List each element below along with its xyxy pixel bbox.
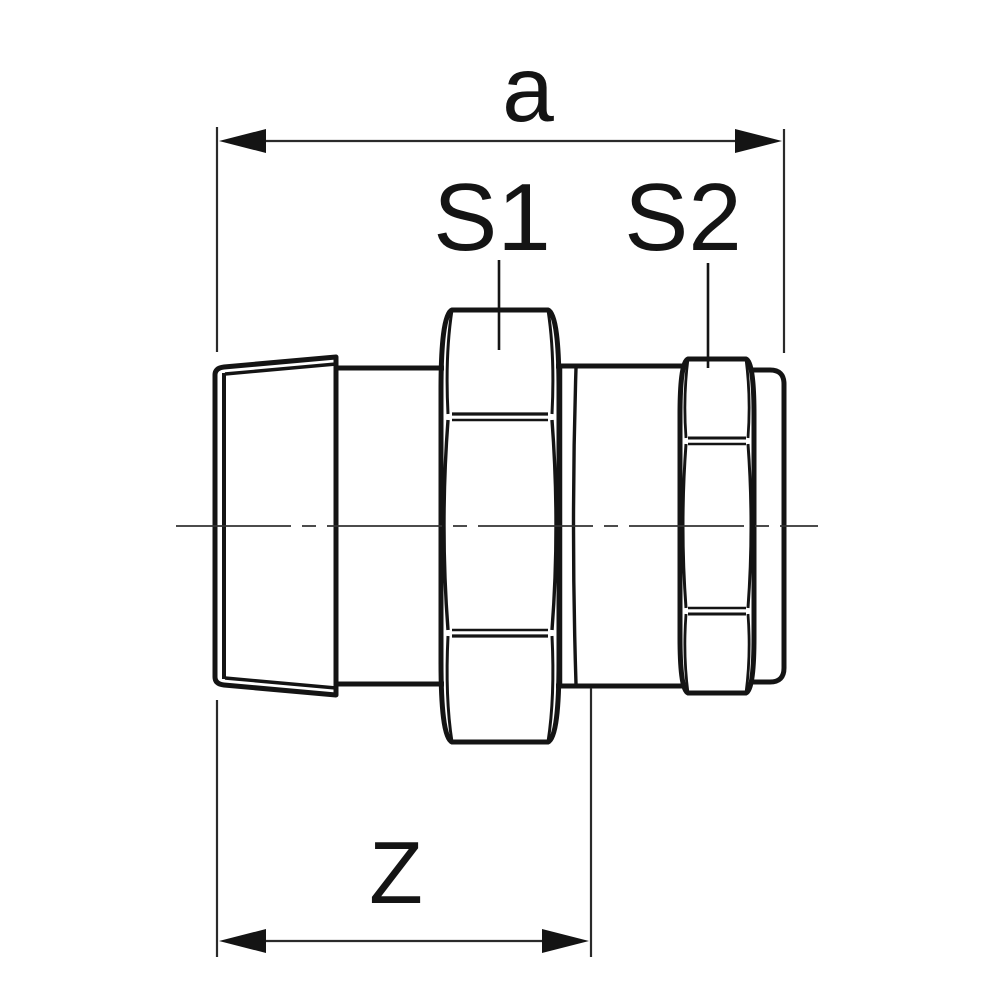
drawing-background	[0, 0, 1000, 1000]
dim-a-label: a	[502, 37, 554, 141]
s2-label: S2	[624, 164, 741, 271]
pipe-union-drawing: a S1 S2	[0, 0, 1000, 1000]
dim-z-label: Z	[369, 823, 423, 922]
technical-drawing-page: a S1 S2	[0, 0, 1000, 1000]
s1-label: S1	[433, 164, 550, 271]
